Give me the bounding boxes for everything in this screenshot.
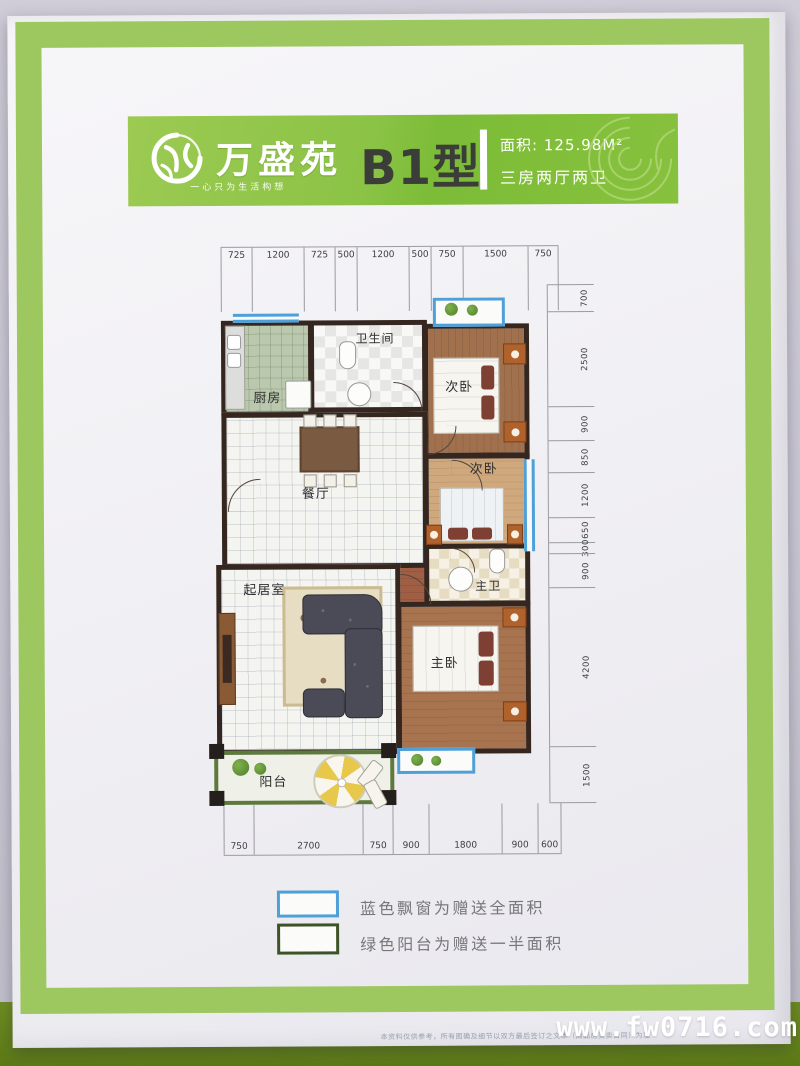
chair — [343, 414, 356, 427]
site-watermark: www.fw0716.com — [556, 1012, 798, 1043]
dim-value: 500 — [410, 247, 431, 260]
dim-cell: 4200 — [549, 587, 596, 746]
pillow — [472, 528, 492, 540]
nightstand — [503, 701, 527, 721]
dim-value: 1200 — [581, 483, 591, 507]
dimension-chain-bottom: 750 2700 750 900 1800 900 600 — [223, 803, 561, 856]
nightstand — [502, 607, 526, 627]
dim-cell: 2500 — [548, 311, 594, 406]
label-bedroom-top: 次卧 — [445, 376, 473, 395]
label-bathroom: 卫生间 — [355, 330, 394, 347]
plant-icon — [411, 754, 423, 766]
armchair — [303, 688, 345, 717]
window-right — [524, 459, 535, 551]
dim-cell: 900 — [392, 804, 428, 854]
dim-value: 1500 — [582, 763, 592, 787]
legend-text-blue: 蓝色飘窗为赠送全面积 — [360, 894, 545, 919]
dim-value: 4200 — [582, 655, 592, 679]
dim-cell: 750 — [362, 804, 392, 854]
dim-value: 750 — [432, 247, 463, 260]
dim-cell: 300 — [549, 542, 595, 553]
dim-value: 750 — [529, 246, 558, 259]
dim-value: 2500 — [580, 347, 590, 371]
dim-cell: 1500 — [550, 746, 596, 803]
chair — [303, 414, 316, 427]
nightstand — [503, 343, 526, 364]
dim-value: 600 — [541, 840, 558, 853]
legend-swatch-green — [277, 923, 339, 954]
toilet-icon — [489, 548, 505, 573]
dim-value: 900 — [403, 841, 420, 854]
dining-table — [299, 426, 359, 472]
dim-value: 750 — [370, 841, 387, 854]
pillow — [481, 365, 494, 389]
sofa — [345, 628, 383, 718]
banner-watermark-swirl-icon — [580, 114, 678, 207]
dim-cell: 700 — [548, 284, 594, 311]
dimension-chain-right: 700 2500 900 850 1200 650 300 900 4200 1… — [547, 284, 597, 803]
dimension-chain-top: 725 1200 725 500 1200 500 750 1500 750 — [221, 245, 559, 312]
brochure-page: 万盛苑 一心只为生活构想 B1型 面积: 125.98M² 三房两厅两卫 725… — [7, 12, 790, 1048]
label-master-bath: 主卫 — [475, 577, 501, 594]
dim-cell: 1200 — [357, 247, 409, 311]
dim-value: 2700 — [297, 841, 320, 854]
pillow — [481, 395, 494, 419]
washbasin-icon — [347, 382, 371, 406]
pillow — [479, 661, 494, 686]
wall-pillar — [381, 743, 396, 758]
plant-icon — [232, 759, 249, 776]
dim-value: 725 — [305, 247, 335, 260]
unit-type-title: B1型 — [360, 128, 481, 199]
dim-cell: 900 — [549, 553, 595, 587]
banner-divider — [480, 130, 487, 190]
plant-icon — [445, 303, 458, 316]
dim-value: 1500 — [464, 246, 528, 259]
toilet-icon — [339, 341, 356, 369]
legend-text-green: 绿色阳台为赠送一半面积 — [360, 930, 564, 955]
dim-cell: 600 — [537, 803, 561, 853]
dim-value: 1200 — [358, 247, 409, 260]
dim-value: 900 — [580, 415, 590, 433]
dim-value: 700 — [580, 289, 590, 307]
area-label: 面积: — [500, 136, 538, 154]
label-kitchen: 厨房 — [253, 387, 281, 406]
plant-icon — [467, 305, 478, 316]
dim-value: 1800 — [454, 841, 477, 854]
dim-value: 850 — [581, 448, 591, 466]
dim-cell: 900 — [501, 803, 537, 853]
dim-cell: 500 — [409, 247, 431, 311]
dim-cell: 1200 — [549, 472, 595, 517]
label-dining: 餐厅 — [302, 483, 330, 502]
label-master-bedroom: 主卧 — [431, 652, 459, 671]
dim-cell: 500 — [335, 247, 357, 311]
dim-cell: 1800 — [428, 803, 501, 853]
dim-cell: 850 — [549, 440, 595, 472]
dim-value: 1200 — [253, 247, 304, 260]
dim-cell: 900 — [548, 406, 594, 440]
photo-background: 万盛苑 一心只为生活构想 B1型 面积: 125.98M² 三房两厅两卫 725… — [0, 0, 800, 1066]
plant-icon — [431, 756, 441, 766]
dim-value: 900 — [581, 562, 591, 580]
dim-value: 650 — [581, 521, 591, 539]
pillow — [448, 528, 468, 540]
stove — [285, 380, 311, 408]
legend-swatch-blue — [277, 890, 339, 917]
wall-pillar — [209, 791, 224, 806]
dim-value: 500 — [336, 247, 357, 260]
dim-value: 900 — [512, 840, 529, 853]
window-kitchen — [233, 314, 299, 323]
nightstand — [426, 525, 442, 545]
pillow — [479, 632, 494, 657]
project-name: 万盛苑 — [216, 129, 342, 184]
dim-cell: 1200 — [252, 247, 304, 311]
kitchen-sink — [227, 353, 241, 368]
label-living: 起居室 — [243, 579, 285, 598]
dim-cell: 750 — [223, 805, 253, 855]
dim-value: 725 — [222, 248, 252, 261]
label-balcony: 阳台 — [259, 771, 287, 790]
brand-tagline: 一心只为生活构想 — [190, 180, 286, 194]
header-banner: 万盛苑 一心只为生活构想 B1型 面积: 125.98M² 三房两厅两卫 — [128, 114, 678, 207]
dim-cell: 2700 — [253, 804, 362, 855]
room-master-bath — [424, 543, 530, 606]
nightstand — [507, 524, 523, 544]
chair — [344, 474, 357, 487]
dim-cell: 725 — [221, 248, 252, 312]
wall-pillar — [209, 744, 224, 759]
chair — [323, 414, 336, 427]
dim-value: 750 — [231, 842, 248, 855]
label-bedroom-mid: 次卧 — [470, 458, 498, 477]
nightstand — [503, 421, 526, 442]
tv-screen — [223, 635, 232, 683]
kitchen-sink — [227, 335, 241, 350]
dim-cell: 725 — [304, 247, 335, 311]
